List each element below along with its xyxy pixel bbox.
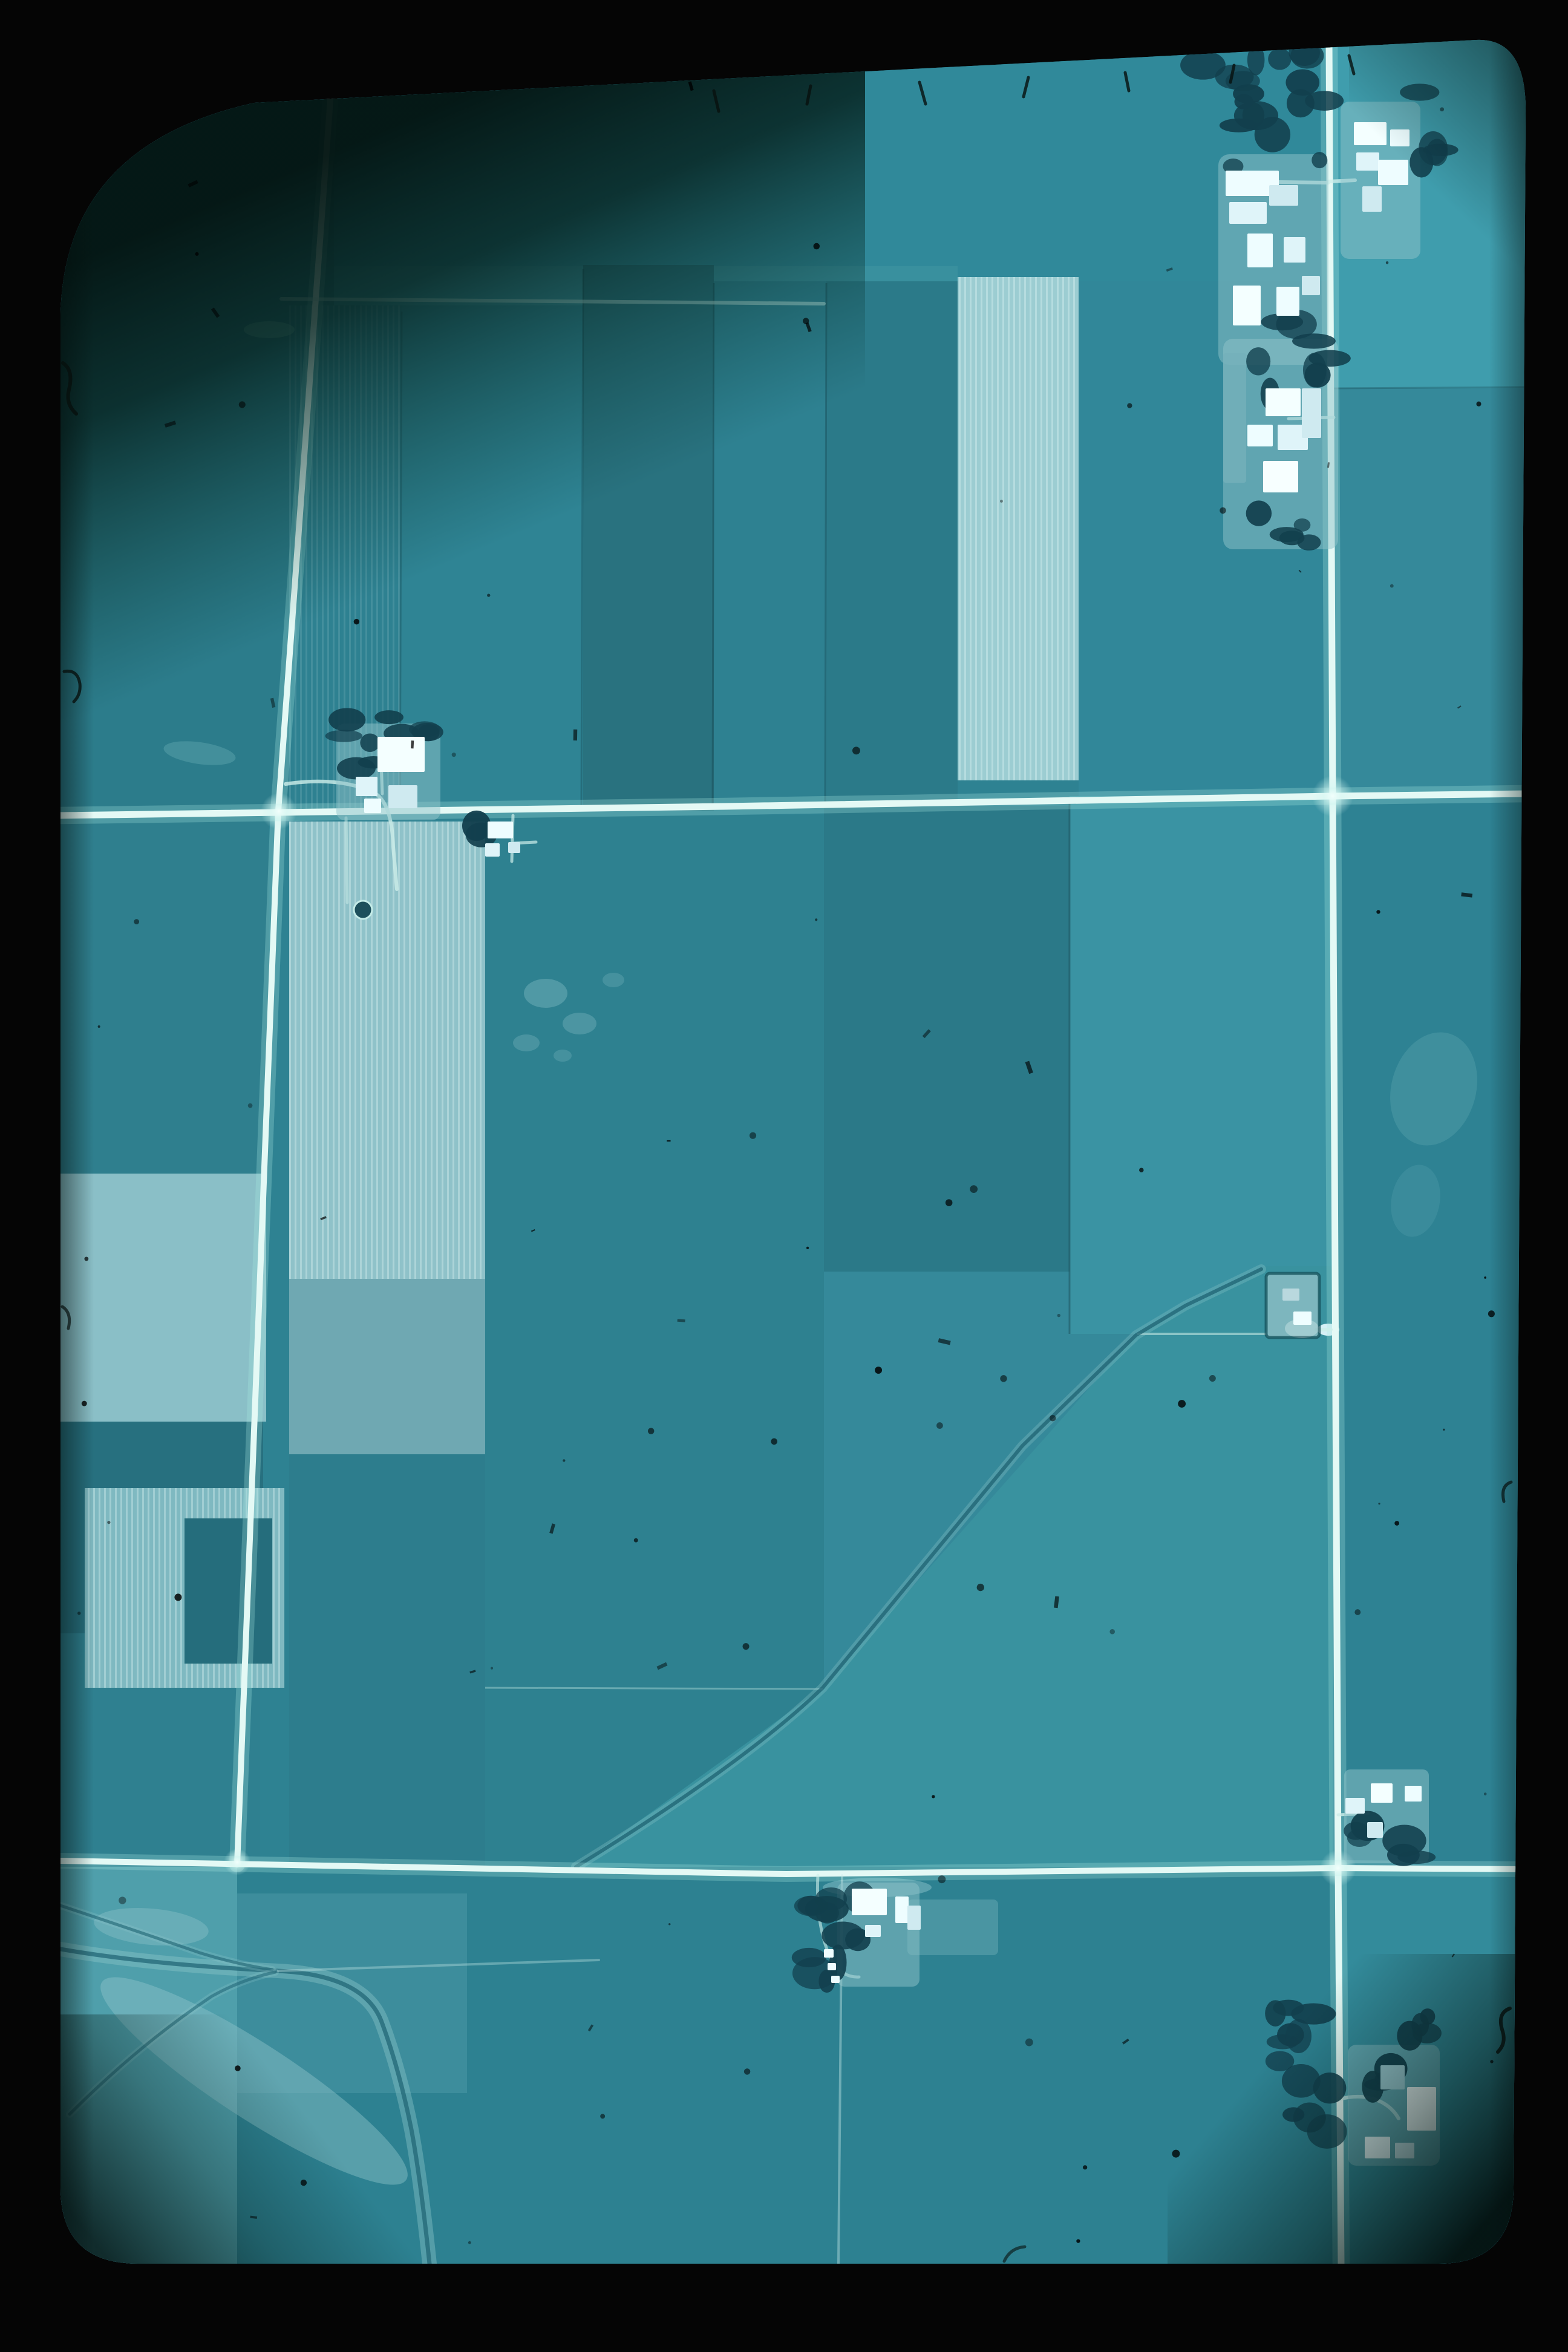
dust-speck [195,252,198,256]
dust-speck [301,2180,307,2186]
dust-speck [648,1428,655,1434]
tree-canopy [1279,531,1305,545]
dust-speck [491,1667,493,1670]
dust-speck [936,1422,943,1429]
dust-speck [743,1643,750,1650]
farm-building [1302,388,1321,438]
dust-speck [174,1593,181,1601]
dust-speck [411,740,414,748]
farm-building [1367,1822,1383,1838]
dust-speck [1390,584,1394,588]
dust-speck [1025,2039,1033,2047]
farm-building [1276,287,1299,316]
dust-speck [573,730,578,740]
tree-canopy [1268,48,1291,70]
dust-speck [235,2065,241,2071]
dust-speck [1109,1629,1115,1635]
dust-speck [806,1247,809,1249]
dust-speck [977,1584,984,1591]
dust-speck [1172,2150,1180,2158]
field-strip-light-bar-furrows [958,277,1079,780]
dust-speck [452,753,456,757]
farm-building [865,1925,881,1937]
farm-building [1229,202,1267,224]
farm-building [824,1949,834,1958]
dust-speck [1209,1375,1216,1382]
field-smudge [554,1050,572,1062]
dust-speck [946,1199,953,1206]
farm-building [1263,461,1298,492]
vignette-bottom-left [60,2014,436,2264]
tree-canopy [1308,350,1350,367]
dust-speck [1178,1400,1186,1408]
farm-building [1284,237,1305,263]
field-w-dark-inset [185,1518,272,1664]
road-intersection-bloom [1312,776,1353,817]
tree-canopy [1387,1844,1420,1866]
field-smudge [603,973,624,987]
photo-area [0,0,1568,2352]
dust-speck [932,1795,935,1798]
dust-speck [1139,1168,1144,1172]
dust-speck [1386,261,1388,264]
field-smudge [524,979,567,1008]
farm-building [1371,1783,1393,1803]
dust-speck [1440,107,1444,111]
dust-speck [1484,1276,1486,1279]
dust-speck [1000,500,1003,503]
tree-canopy [1246,500,1272,526]
farm-building [1247,234,1273,267]
dust-speck [354,619,359,624]
dust-speck [1354,1609,1361,1615]
dust-speck [970,1185,978,1193]
field-below-striped [289,1279,485,1454]
field-smudge [513,1034,540,1051]
vignette-top-left [60,36,865,956]
farm-building [1247,425,1273,446]
dust-speck [1127,403,1132,408]
farmstead-pad [1223,353,1246,483]
dust-speck [1378,1503,1380,1504]
farm-building [895,1896,909,1923]
dust-speck [813,243,820,250]
tree-canopy [1312,152,1327,168]
dust-speck [1484,1792,1487,1795]
farm-building [1269,185,1298,206]
dust-speck [1490,2060,1493,2063]
farm-building [828,1963,836,1970]
dust-speck [1000,1375,1007,1382]
dust-speck [563,1459,565,1462]
dust-speck [1476,402,1481,407]
dust-speck [487,593,490,596]
film-slide [0,0,1568,2352]
farmstead-pad [1266,1273,1319,1338]
dust-speck [1376,910,1380,913]
dust-speck [82,1401,87,1406]
dust-speck [77,1612,80,1615]
dust-speck [1488,1310,1495,1317]
dust-speck [744,2068,750,2074]
boundary-center-bottom [485,1688,823,1689]
dust-speck [468,2241,471,2244]
dust-speck [600,2114,605,2118]
dust-speck [134,919,139,924]
dust-speck [1076,2239,1080,2243]
dust-speck [852,746,860,754]
edge-feather-left [60,36,103,2269]
farm-building [1345,1798,1365,1814]
dust-speck [668,1923,670,1925]
dust-speck [815,918,817,921]
dust-speck [239,401,246,408]
dust-speck [875,1367,882,1374]
dust-speck [84,1256,88,1261]
tree-canopy [1234,94,1253,109]
tree-canopy [805,1896,849,1922]
farm-building [1282,1289,1299,1301]
farm-building [852,1889,887,1915]
farmstead-pad [907,1900,998,1955]
dust-speck [1220,508,1226,514]
farm-building [1233,286,1261,325]
tree-canopy [1246,347,1270,375]
dust-speck [771,1439,777,1445]
tree-canopy [1305,91,1344,111]
tree-canopy [822,1921,864,1949]
road-intersection-bloom [224,1849,250,1875]
farm-building [1293,1312,1312,1325]
farm-building [1405,1786,1422,1802]
farm-building [1266,388,1301,416]
field-below-striped-2 [289,1454,485,1869]
dust-speck [750,1132,756,1139]
farm-building [1302,276,1320,295]
farm-building [907,1906,921,1930]
dust-speck [1443,1429,1445,1431]
dust-speck [98,1025,100,1028]
dust-speck [1057,1314,1060,1317]
dust-speck [667,1140,670,1142]
dust-speck [1394,1521,1399,1526]
dust-speck [634,1538,638,1543]
dust-speck [1083,2165,1087,2169]
vignette-bottom-right [1168,1954,1527,2264]
dust-speck [248,1103,253,1108]
dust-speck [1050,1415,1056,1422]
dust-speck [938,1875,946,1883]
field-smudge [563,1013,596,1034]
farm-building [831,1976,840,1983]
dust-speck [107,1521,110,1524]
dust-speck [119,1896,126,1904]
dust-speck [678,1319,685,1322]
field-east-upper-bright [1070,796,1333,1334]
aerial-photo [0,0,1568,2352]
field-center-big [485,815,824,1869]
